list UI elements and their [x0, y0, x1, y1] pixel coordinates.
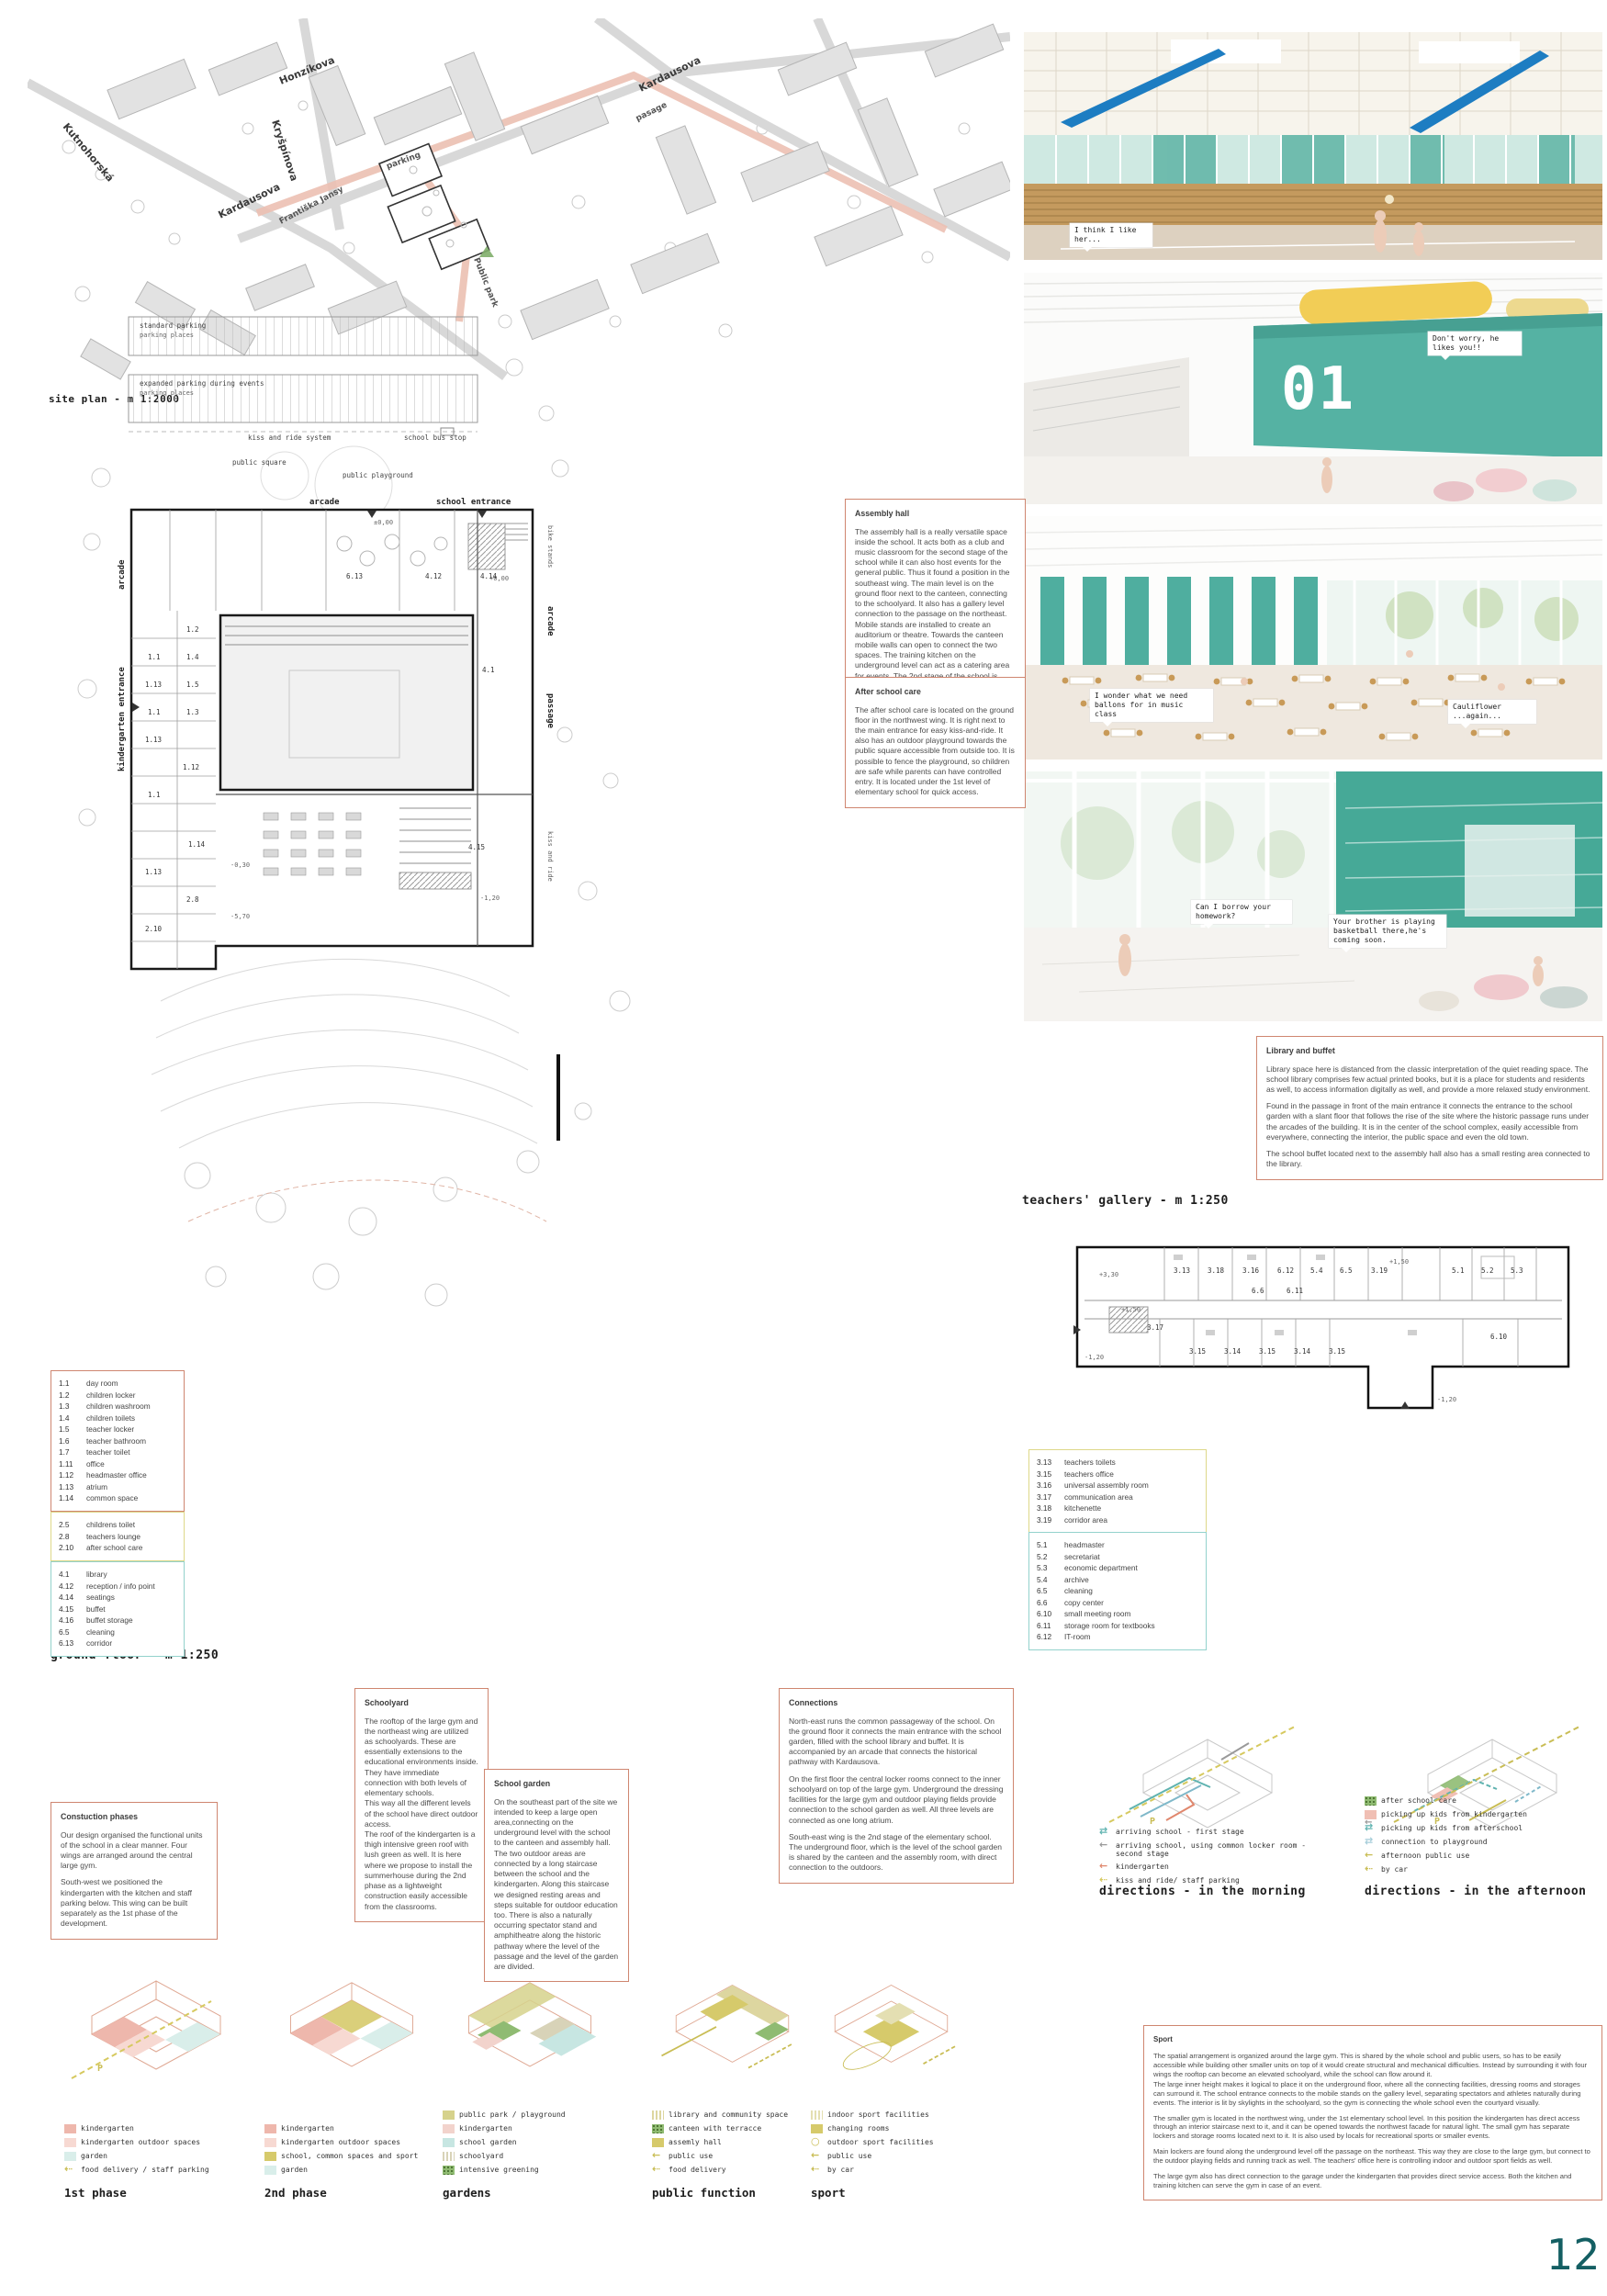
phase-1-title: 1st phase — [64, 2186, 127, 2200]
legend-row: 3.18kitchenette — [1037, 1503, 1198, 1514]
sport-p5: The large gym also has direct connection… — [1153, 2172, 1592, 2190]
legend-marker-icon — [443, 2152, 455, 2161]
svg-text:5.3: 5.3 — [1511, 1266, 1523, 1275]
legend-marker-icon — [652, 2110, 664, 2120]
legend-row: 1.2children locker — [59, 1390, 176, 1401]
schoolyard-box: Schoolyard The rooftop of the large gym … — [354, 1688, 489, 1922]
ground-floor-plan: standard parkingparking placesexpanded p… — [51, 303, 1019, 1350]
svg-text:kiss and ride system: kiss and ride system — [248, 433, 332, 442]
legend-row: 2.5childrens toilet — [59, 1519, 176, 1531]
directions-afternoon-title: directions - in the afternoon — [1365, 1885, 1586, 1898]
legend-marker-icon — [264, 2166, 276, 2175]
legend-marker-icon — [443, 2110, 455, 2120]
construction-phases-box: Constuction phases Our design organised … — [51, 1802, 218, 1940]
svg-text:arcade: arcade — [309, 498, 340, 507]
phase-2-axon — [264, 1924, 439, 2103]
legend-marker-icon — [652, 2152, 664, 2161]
legend-row: kindergarten — [443, 2124, 566, 2133]
speech-bubble: I wonder what we need ballons for in mus… — [1090, 689, 1213, 722]
svg-text:kindergarten entrance: kindergarten entrance — [117, 667, 127, 771]
legend-row: 6.6copy center — [1037, 1597, 1198, 1609]
legend-row: 1.12headmaster office — [59, 1469, 176, 1481]
legend-row: public use — [811, 2152, 934, 2161]
legend-marker-icon — [443, 2138, 455, 2147]
sport-box-title: Sport — [1153, 2035, 1592, 2044]
svg-text:3.15: 3.15 — [1189, 1347, 1206, 1356]
legend-marker-icon — [1099, 1841, 1111, 1851]
gallery-legend-wing3: 3.13teachers toilets3.15teachers office3… — [1028, 1449, 1207, 1533]
svg-text:+1,50: +1,50 — [1389, 1258, 1409, 1266]
legend-marker-icon — [811, 2152, 823, 2161]
svg-text:P: P — [97, 2064, 103, 2074]
svg-text:-1,20: -1,20 — [1084, 1354, 1104, 1361]
gardens-title: gardens — [443, 2186, 491, 2200]
svg-text:+3,30: +3,30 — [1099, 1271, 1118, 1278]
legend-marker-icon — [1365, 1824, 1377, 1833]
legend-marker-icon — [1365, 1796, 1377, 1806]
legend-row: 1.4children toilets — [59, 1412, 176, 1424]
legend-row: 6.10small meeting room — [1037, 1608, 1198, 1620]
public-function-legend: library and community spacecanteen with … — [652, 2110, 788, 2179]
public-function-axon — [652, 1924, 813, 2103]
legend-marker-icon — [64, 2138, 76, 2147]
legend-row: 4.1library — [59, 1569, 176, 1581]
legend-row: picking up kids from afterschool — [1365, 1824, 1594, 1833]
phase-group-2nd: kindergartenkindergarten outdoor spacess… — [264, 1924, 439, 2200]
construction-phases-title: Constuction phases — [61, 1812, 208, 1823]
legend-row: assemly hall — [652, 2138, 788, 2147]
legend-marker-icon — [811, 2124, 823, 2133]
legend-marker-icon — [811, 2166, 823, 2175]
legend-row: food delivery — [652, 2166, 788, 2175]
gallery-legend-admin: 5.1headmaster5.2secretariat5.3economic d… — [1028, 1532, 1207, 1650]
legend-row: 1.6teacher bathroom — [59, 1435, 176, 1447]
svg-text:3.19: 3.19 — [1371, 1266, 1388, 1275]
legend-marker-icon — [1099, 1863, 1111, 1872]
gardens-axon — [443, 1924, 617, 2103]
big-number-01: 01 — [1281, 355, 1355, 423]
legend-row: by car — [1365, 1865, 1594, 1874]
construction-p1: Our design organised the functional unit… — [61, 1830, 208, 1872]
svg-text:public playground: public playground — [343, 471, 413, 479]
legend-row: school garden — [443, 2138, 566, 2147]
legend-marker-icon — [811, 2110, 823, 2120]
speech-bubble: Can I borrow your homework? — [1191, 900, 1292, 924]
svg-text:1.1: 1.1 — [148, 708, 161, 716]
legend-row: school, common spaces and sport — [264, 2152, 418, 2161]
legend-row: schoolyard — [443, 2152, 566, 2161]
library-buffet-p2: Found in the passage in front of the mai… — [1266, 1101, 1593, 1142]
legend-row: kindergarten — [1099, 1863, 1316, 1872]
phase-group-gardens: public park / playgroundkindergartenscho… — [443, 1924, 626, 2200]
legend-row: 6.12IT-room — [1037, 1631, 1198, 1643]
phase-1-axon: P — [64, 1924, 248, 2103]
sport-p1: The spatial arrangement is organized aro… — [1153, 2052, 1592, 2079]
legend-marker-icon — [443, 2124, 455, 2133]
legend-row: 4.12reception / info point — [59, 1581, 176, 1593]
svg-text:4.14: 4.14 — [480, 572, 498, 580]
legend-row: after school care — [1365, 1796, 1594, 1806]
svg-text:Kryšpínova: Kryšpínova — [269, 118, 300, 183]
legend-marker-icon — [1365, 1838, 1377, 1847]
teachers-gallery-title: teachers' gallery - m 1:250 — [1022, 1194, 1229, 1208]
svg-text:5.2: 5.2 — [1481, 1266, 1494, 1275]
teachers-gallery-plan: +3,30+1,50+1,50-1,20-1,203.133.183.166.1… — [1022, 1220, 1602, 1440]
legend-marker-icon — [652, 2138, 664, 2147]
svg-text:passage: passage — [545, 693, 555, 729]
parking-p-mark: P — [1150, 1817, 1155, 1827]
legend-marker-icon — [264, 2138, 276, 2147]
svg-text:1.4: 1.4 — [186, 653, 199, 661]
sport-p4: Main lockers are found along the undergr… — [1153, 2147, 1592, 2166]
render-atrium: 01 Don't worry, he likes you!! — [1024, 273, 1602, 504]
svg-text:2.8: 2.8 — [186, 895, 199, 904]
legend-row: 5.3economic department — [1037, 1562, 1198, 1574]
svg-text:3.14: 3.14 — [1224, 1347, 1242, 1356]
legend-row: kindergarten — [64, 2124, 209, 2133]
legend-marker-icon — [652, 2124, 664, 2133]
legend-row: library and community space — [652, 2110, 788, 2120]
svg-text:6.6: 6.6 — [1252, 1287, 1264, 1295]
legend-row: 3.17communication area — [1037, 1491, 1198, 1503]
connections-p2: On the first floor the central locker ro… — [789, 1774, 1004, 1826]
schoolyard-title: Schoolyard — [365, 1698, 478, 1709]
legend-row: outdoor sport facilities — [811, 2138, 934, 2147]
legend-row: arriving school, using common locker roo… — [1099, 1841, 1316, 1858]
legend-row: 6.11storage room for textbooks — [1037, 1620, 1198, 1632]
svg-text:±0,00: ±0,00 — [374, 519, 393, 526]
svg-text:1.14: 1.14 — [188, 840, 206, 849]
svg-text:6.5: 6.5 — [1340, 1266, 1353, 1275]
legend-row: 1.13atrium — [59, 1481, 176, 1493]
legend-marker-icon — [1099, 1828, 1111, 1837]
legend-marker-icon — [1365, 1865, 1377, 1874]
legend-row: 3.15teachers office — [1037, 1469, 1198, 1480]
legend-marker-icon — [64, 2152, 76, 2161]
sport-box: Sport The spatial arrangement is organiz… — [1143, 2025, 1602, 2200]
legend-row: 2.8teachers lounge — [59, 1531, 176, 1543]
legend-row: garden — [64, 2152, 209, 2161]
legend-row: 3.16universal assembly room — [1037, 1480, 1198, 1491]
legend-row: changing rooms — [811, 2124, 934, 2133]
svg-text:standard parking: standard parking — [140, 321, 206, 330]
svg-text:-5,70: -5,70 — [230, 913, 250, 920]
legend-marker-icon — [264, 2124, 276, 2133]
legend-row: picking up kids from kindergarten — [1365, 1810, 1594, 1819]
legend-row: 2.10after school care — [59, 1542, 176, 1554]
svg-text:expanded parking during events: expanded parking during events — [140, 379, 264, 388]
svg-text:2.10: 2.10 — [145, 925, 163, 933]
legend-marker-icon — [443, 2166, 455, 2175]
directions-morning-axon: P — [1102, 1683, 1313, 1829]
sport-p2: The large inner height makes it logical … — [1153, 2080, 1592, 2108]
legend-row: 6.13corridor — [59, 1638, 176, 1649]
legend-row: garden — [264, 2166, 418, 2175]
svg-text:4.1: 4.1 — [482, 666, 495, 674]
legend-row: arriving school - first stage — [1099, 1828, 1316, 1837]
phase-group-1st: P kindergartenkindergarten outdoor space… — [64, 1924, 253, 2200]
presentation-board: KutnohorskáHonzíkovaKryšpínovaKardausova… — [0, 0, 1607, 2296]
ground-floor-legend-wing1: 1.1day room1.2children locker1.3children… — [51, 1370, 185, 1512]
legend-marker-icon — [64, 2124, 76, 2133]
phase-2-legend: kindergartenkindergarten outdoor spacess… — [264, 2124, 418, 2179]
legend-row: 6.5cleaning — [1037, 1585, 1198, 1597]
legend-row: 1.5teacher locker — [59, 1424, 176, 1435]
legend-row: intensive greening — [443, 2166, 566, 2175]
legend-marker-icon — [652, 2166, 664, 2175]
render-canteen: I wonder what we need ballons for in mus… — [1024, 516, 1602, 760]
legend-marker-icon — [264, 2152, 276, 2161]
sport-axon — [811, 1924, 972, 2103]
legend-row: 5.2secretariat — [1037, 1551, 1198, 1563]
svg-text:parking places: parking places — [140, 332, 194, 339]
svg-text:4.12: 4.12 — [425, 572, 442, 580]
legend-marker-icon — [64, 2166, 76, 2175]
svg-text:public square: public square — [232, 458, 287, 467]
legend-row: 6.5cleaning — [59, 1626, 176, 1638]
svg-text:-1,20: -1,20 — [1437, 1396, 1456, 1403]
svg-text:kiss and ride: kiss and ride — [546, 831, 554, 882]
legend-row: 3.13teachers toilets — [1037, 1457, 1198, 1469]
directions-morning-legend: arriving school - first stagearriving sc… — [1099, 1828, 1316, 1890]
svg-text:arcade: arcade — [545, 606, 555, 636]
legend-row: 1.14common space — [59, 1492, 176, 1504]
sport-title: sport — [811, 2186, 846, 2200]
svg-text:3.14: 3.14 — [1294, 1347, 1311, 1356]
connections-p3: South-east wing is the 2nd stage of the … — [789, 1832, 1004, 1874]
svg-text:3.17: 3.17 — [1147, 1323, 1163, 1332]
svg-text:3.16: 3.16 — [1242, 1266, 1260, 1275]
svg-text:6.12: 6.12 — [1277, 1266, 1294, 1275]
render-assembly-gym: I think I like her... — [1024, 32, 1602, 260]
svg-text:1.2: 1.2 — [186, 625, 199, 634]
legend-marker-icon — [1365, 1851, 1377, 1861]
legend-row: by car — [811, 2166, 934, 2175]
svg-text:-0,30: -0,30 — [230, 861, 250, 869]
svg-text:3.15: 3.15 — [1259, 1347, 1275, 1356]
legend-row: 4.16buffet storage — [59, 1615, 176, 1626]
legend-row: 1.7teacher toilet — [59, 1446, 176, 1458]
legend-row: 5.4archive — [1037, 1574, 1198, 1586]
svg-text:1.1: 1.1 — [148, 653, 161, 661]
legend-row: connection to playground — [1365, 1838, 1594, 1847]
legend-row: indoor sport facilities — [811, 2110, 934, 2120]
svg-text:4.15: 4.15 — [468, 843, 485, 851]
legend-row: kindergarten outdoor spaces — [64, 2138, 209, 2147]
speech-bubble: Your brother is playing basketball there… — [1329, 915, 1446, 948]
svg-text:6.11: 6.11 — [1287, 1287, 1303, 1295]
svg-text:1.13: 1.13 — [145, 868, 162, 876]
connections-title: Connections — [789, 1698, 1004, 1709]
svg-text:1.12: 1.12 — [183, 763, 199, 771]
school-garden-title: School garden — [494, 1779, 619, 1790]
svg-text:1.13: 1.13 — [145, 681, 162, 689]
svg-text:1.13: 1.13 — [145, 736, 162, 744]
legend-row: food delivery / staff parking — [64, 2166, 209, 2175]
construction-p2: South-west we positioned the kindergarte… — [61, 1877, 208, 1929]
svg-text:3.13: 3.13 — [1174, 1266, 1190, 1275]
legend-row: kindergarten outdoor spaces — [264, 2138, 418, 2147]
svg-text:bike stands: bike stands — [546, 525, 554, 568]
library-render-graphic — [1024, 771, 1602, 1021]
svg-text:1.5: 1.5 — [186, 681, 199, 689]
ground-floor-legend-wing2: 2.5childrens toilet2.8teachers lounge2.1… — [51, 1512, 185, 1561]
legend-row: 4.14seatings — [59, 1592, 176, 1604]
svg-text:parking places: parking places — [140, 389, 194, 397]
svg-text:1.1: 1.1 — [148, 791, 161, 799]
legend-row: 1.11office — [59, 1458, 176, 1470]
phase-1-legend: kindergartenkindergarten outdoor spacesg… — [64, 2124, 209, 2179]
svg-text:pasage: pasage — [635, 101, 669, 124]
public-function-title: public function — [652, 2186, 756, 2200]
svg-text:school bus stop: school bus stop — [404, 433, 466, 442]
svg-text:+1,50: +1,50 — [1121, 1306, 1141, 1313]
svg-text:school entrance: school entrance — [436, 498, 511, 507]
schoolyard-body: The rooftop of the large gym and the nor… — [365, 1716, 478, 1912]
legend-row: kindergarten — [264, 2124, 418, 2133]
directions-afternoon-legend: after school carepicking up kids from ki… — [1365, 1796, 1594, 1879]
svg-text:1.3: 1.3 — [186, 708, 199, 716]
sport-p3: The smaller gym is located in the northw… — [1153, 2114, 1592, 2142]
render-passage-library: Can I borrow your homework? Your brother… — [1024, 771, 1602, 1021]
phase-group-sport: indoor sport facilitieschanging roomsout… — [811, 1924, 972, 2200]
library-buffet-box: Library and buffet Library space here is… — [1256, 1036, 1603, 1180]
speech-bubble: Don't worry, he likes you!! — [1428, 332, 1522, 355]
speech-bubble: Cauliflower ...again... — [1448, 700, 1536, 724]
connections-box: Connections North-east runs the common p… — [779, 1688, 1014, 1884]
svg-text:-1,20: -1,20 — [480, 895, 500, 902]
legend-row: 5.1headmaster — [1037, 1539, 1198, 1551]
library-buffet-p3: The school buffet located next to the as… — [1266, 1149, 1593, 1169]
legend-row: 1.1day room — [59, 1378, 176, 1390]
connections-p1: North-east runs the common passageway of… — [789, 1716, 1004, 1768]
page-number: 12 — [1546, 2230, 1601, 2279]
svg-text:Public park: Public park — [471, 256, 500, 310]
library-buffet-title: Library and buffet — [1266, 1046, 1593, 1057]
svg-text:5.4: 5.4 — [1310, 1266, 1323, 1275]
legend-row: public park / playground — [443, 2110, 566, 2120]
ground-floor-legend-public: 4.1library4.12reception / info point4.14… — [51, 1561, 185, 1657]
sport-legend: indoor sport facilitieschanging roomsout… — [811, 2110, 934, 2179]
svg-text:5.1: 5.1 — [1452, 1266, 1465, 1275]
svg-text:3.18: 3.18 — [1208, 1266, 1225, 1275]
legend-row: public use — [652, 2152, 788, 2161]
legend-row: 3.19corridor area — [1037, 1514, 1198, 1526]
directions-morning-title: directions - in the morning — [1099, 1885, 1306, 1898]
svg-text:6.10: 6.10 — [1490, 1333, 1508, 1341]
legend-row: afternoon public use — [1365, 1851, 1594, 1861]
svg-text:arcade: arcade — [118, 559, 127, 590]
volleyball — [1385, 195, 1394, 204]
svg-text:6.13: 6.13 — [346, 572, 363, 580]
legend-row: canteen with terracce — [652, 2124, 788, 2133]
phase-2-title: 2nd phase — [264, 2186, 327, 2200]
legend-row: 4.15buffet — [59, 1604, 176, 1615]
speech-bubble: I think I like her... — [1070, 223, 1152, 247]
legend-marker-icon — [1365, 1810, 1377, 1819]
phase-group-public-function: library and community spacecanteen with … — [652, 1924, 813, 2200]
legend-marker-icon — [811, 2138, 823, 2147]
svg-text:3.15: 3.15 — [1329, 1347, 1345, 1356]
library-buffet-p1: Library space here is distanced from the… — [1266, 1064, 1593, 1096]
gardens-legend: public park / playgroundkindergartenscho… — [443, 2110, 566, 2179]
legend-row: 1.3children washroom — [59, 1401, 176, 1412]
